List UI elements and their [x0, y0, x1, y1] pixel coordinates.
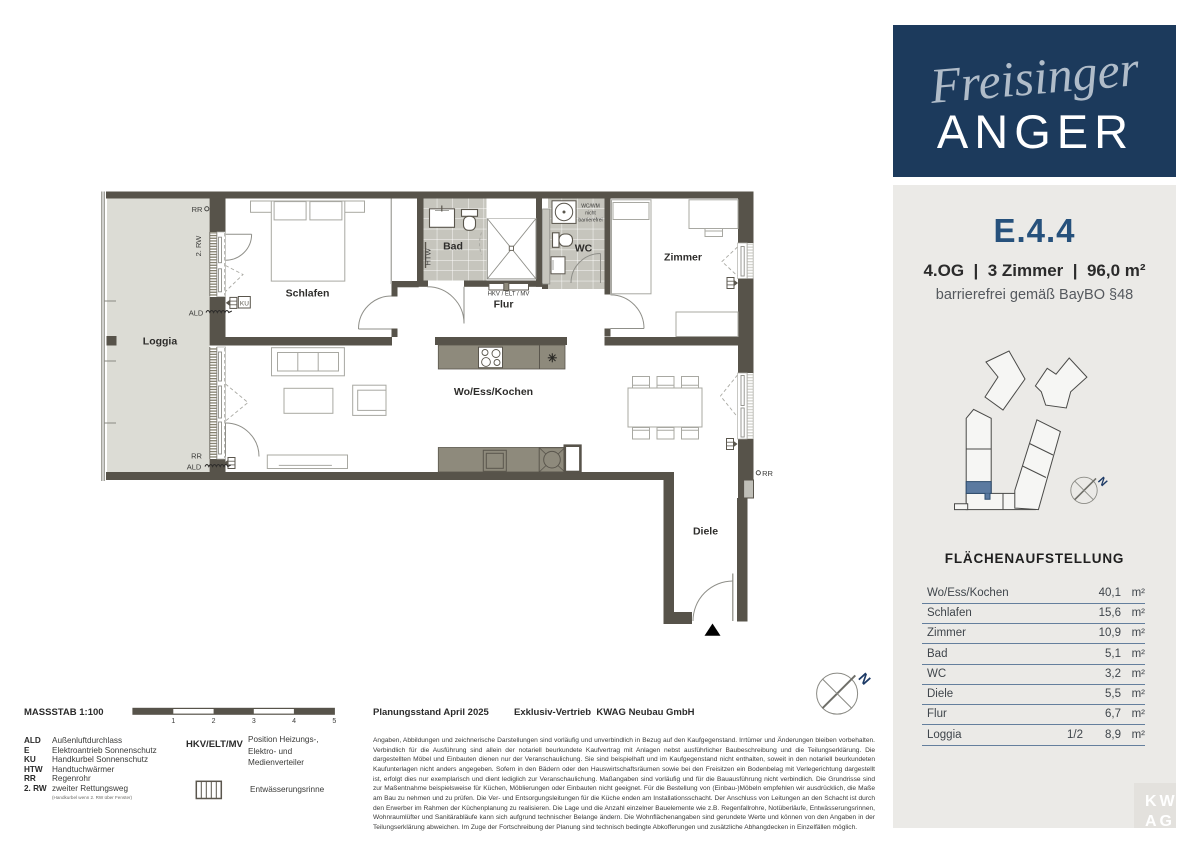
- svg-text:N: N: [1095, 475, 1109, 489]
